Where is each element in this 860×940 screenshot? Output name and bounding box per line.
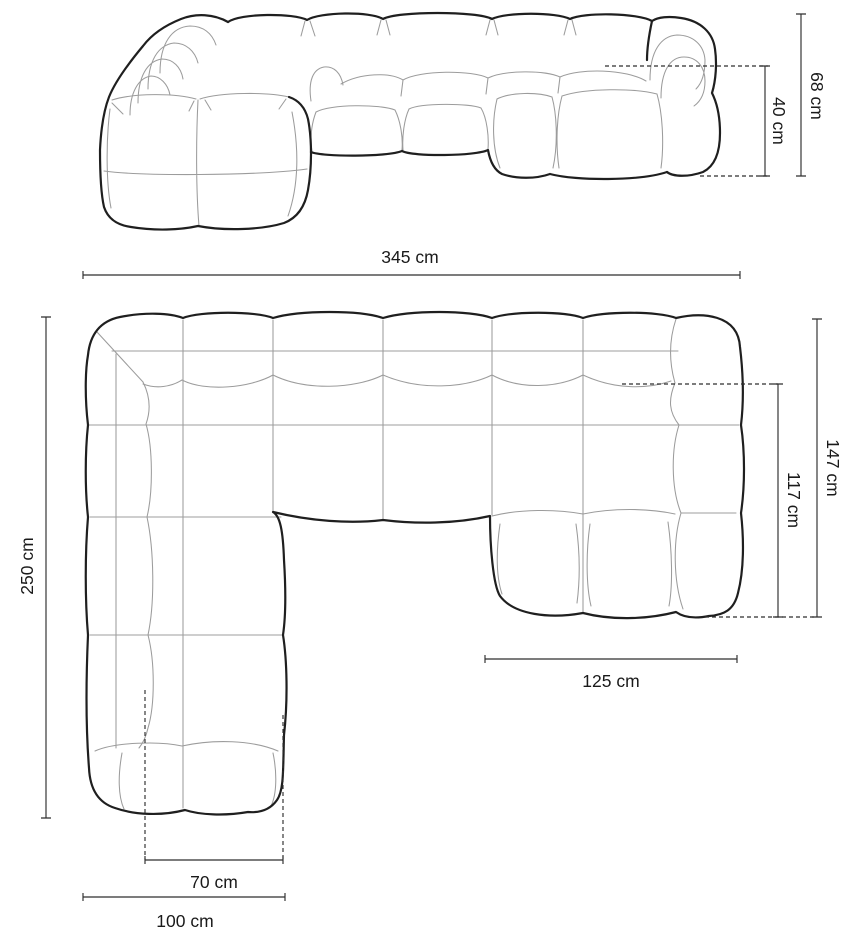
label-chaise-depth-inner: 117 cm (784, 472, 804, 528)
label-total-width: 345 cm (381, 247, 438, 267)
label-total-depth: 250 cm (17, 537, 37, 594)
label-armrest-height: 40 cm (769, 97, 789, 145)
label-front-seat-width: 70 cm (190, 872, 238, 892)
label-chaise-depth-outer: 147 cm (823, 439, 843, 496)
diagram-background (0, 0, 860, 940)
label-chaise-width: 125 cm (582, 671, 639, 691)
diagram-canvas: 345 cm 68 cm 40 cm 250 cm 147 cm 117 cm … (0, 0, 860, 940)
sofa-dimensions-diagram: 345 cm 68 cm 40 cm 250 cm 147 cm 117 cm … (0, 0, 860, 940)
label-total-height: 68 cm (807, 72, 827, 120)
label-side-section-width: 100 cm (156, 911, 213, 931)
